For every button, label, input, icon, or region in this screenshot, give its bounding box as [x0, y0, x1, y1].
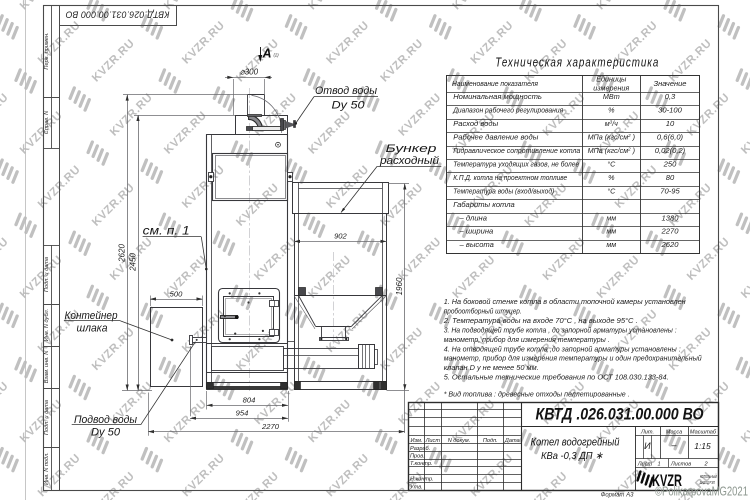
- svg-text:500: 500: [170, 290, 183, 299]
- svg-text:Перв. примен.: Перв. примен.: [44, 32, 50, 69]
- svg-text:250: 250: [663, 159, 677, 168]
- svg-text:Лит.: Лит.: [640, 429, 654, 435]
- svg-text:Н.контр.: Н.контр.: [410, 477, 434, 483]
- svg-text:пробоотборный штуцер.: пробоотборный штуцер.: [444, 306, 522, 315]
- svg-text:Масса: Масса: [666, 429, 683, 435]
- svg-text:Инв. N подл.: Инв. N подл.: [44, 452, 50, 485]
- svg-text:70-95: 70-95: [660, 186, 680, 195]
- svg-text:2. Температура воды на входе: 2. Температура воды на входе 70°С , на в…: [443, 316, 638, 325]
- svg-text:902: 902: [334, 231, 347, 240]
- svg-text:МПа (кгс/см2 ): МПа (кгс/см2 ): [588, 133, 635, 142]
- svg-text:804: 804: [243, 396, 256, 405]
- svg-text:Т.контр.: Т.контр.: [410, 461, 433, 467]
- svg-text:%: %: [608, 173, 615, 182]
- svg-text:2270: 2270: [261, 422, 280, 431]
- svg-text:–: –: [670, 440, 677, 450]
- svg-text:4. На отводящей трубе котла ,: 4. На отводящей трубе котла ,до запорной…: [444, 344, 681, 353]
- svg-text:КВа -0,3 ДП ∗: КВа -0,3 ДП ∗: [541, 450, 603, 462]
- svg-text:°С: °С: [607, 186, 616, 195]
- svg-text:Инв. N дубл.: Инв. N дубл.: [44, 309, 50, 341]
- svg-text:2270: 2270: [661, 227, 680, 236]
- svg-text:мм: мм: [606, 227, 616, 236]
- svg-text:1: 1: [657, 461, 660, 467]
- svg-text:К.П.Д. котла на проектном топл: К.П.Д. котла на проектном топливе: [453, 173, 567, 182]
- svg-text:3. На подводящей трубе котла: 3. На подводящей трубе котла , до запорн…: [444, 325, 677, 334]
- svg-text:клапан D у не менее 50 мм.: клапан D у не менее 50 мм.: [444, 363, 539, 372]
- svg-text:– высота: – высота: [453, 240, 494, 249]
- svg-text:манометр, прибор для измерени: манометр, прибор для измерения температу…: [444, 354, 703, 363]
- svg-text:%: %: [608, 106, 615, 115]
- svg-text:2620: 2620: [118, 244, 127, 263]
- svg-text:0,6(6,0): 0,6(6,0): [657, 133, 684, 142]
- svg-text:Dy 50: Dy 50: [91, 426, 121, 438]
- svg-text:10: 10: [666, 119, 675, 128]
- svg-text:Dy 50: Dy 50: [332, 99, 366, 111]
- svg-text:Номинальная мощность: Номинальная мощность: [453, 92, 542, 101]
- svg-text:расходный: расходный: [379, 155, 439, 167]
- svg-text:30-100: 30-100: [658, 106, 682, 115]
- svg-text:Лист: Лист: [637, 461, 653, 467]
- svg-text:Утв.: Утв.: [409, 484, 423, 490]
- svg-text:Техническая характеристика: Техническая характеристика: [495, 56, 659, 70]
- svg-text:Дата: Дата: [504, 438, 520, 444]
- svg-text:°С: °С: [607, 159, 616, 168]
- svg-text:©PolikarpovaMG2021: ©PolikarpovaMG2021: [655, 484, 748, 499]
- svg-text:МВт: МВт: [603, 92, 620, 101]
- svg-text:МПа (кгс/см2 ): МПа (кгс/см2 ): [588, 146, 635, 155]
- svg-text:– ширина: – ширина: [453, 227, 493, 236]
- svg-text:манометр, прибор для измерени: манометр, прибор для измерения температу…: [444, 335, 610, 344]
- svg-text:(2): (2): [274, 53, 280, 58]
- svg-text:шлака: шлака: [77, 322, 108, 334]
- svg-text:0,3: 0,3: [665, 92, 676, 101]
- svg-text:Гидравлическое сопротивление к: Гидравлическое сопротивление котла: [453, 146, 580, 155]
- svg-text:Рабочее давление воды: Рабочее давление воды: [453, 133, 539, 142]
- svg-text:1960: 1960: [395, 277, 404, 295]
- svg-text:Справ. N: Справ. N: [44, 110, 50, 134]
- svg-text:КВТД.026.031.00.000 ВО: КВТД.026.031.00.000 ВО: [66, 10, 170, 20]
- svg-text:Разраб.: Разраб.: [410, 446, 430, 452]
- svg-text:5. Остальные технические треб: 5. Остальные технические требования по О…: [444, 373, 669, 382]
- svg-text:1. На боковой стенке котла в: 1. На боковой стенке котла в области топ…: [444, 297, 687, 306]
- svg-text:Наименование показателя: Наименование показателя: [452, 79, 538, 88]
- svg-text:Диапазон рабочего регулировани: Диапазон рабочего регулирования: [452, 106, 563, 115]
- svg-text:Листов: Листов: [670, 461, 691, 467]
- svg-text:И: И: [644, 441, 651, 451]
- svg-text:Габариты котла: Габариты котла: [453, 200, 515, 209]
- svg-text:– длина: – длина: [453, 213, 487, 222]
- svg-text:см. п. 1: см. п. 1: [143, 225, 190, 237]
- svg-text:м3/ч: м3/ч: [605, 119, 618, 128]
- svg-text:Температура воды (вход/выход): Температура воды (вход/выход): [453, 186, 554, 195]
- svg-text:Температура уходящих газов, не: Температура уходящих газов, не более: [453, 159, 579, 168]
- svg-text:Формат А3: Формат А3: [601, 493, 634, 499]
- svg-text:мм: мм: [606, 240, 616, 249]
- svg-text:954: 954: [236, 409, 249, 418]
- svg-text:Подп. и дата: Подп. и дата: [44, 400, 50, 435]
- svg-text:Изм.: Изм.: [411, 438, 423, 444]
- svg-text:0,02(0,2): 0,02(0,2): [655, 146, 686, 155]
- svg-text:1380: 1380: [662, 213, 680, 222]
- svg-text:Подп. и дата: Подп. и дата: [44, 257, 50, 292]
- svg-text:Котел водогрейный: Котел водогрейный: [531, 437, 620, 449]
- svg-text:Масштаб: Масштаб: [690, 429, 717, 435]
- svg-text:КВТД .026.031.00.000 ВО: КВТД .026.031.00.000 ВО: [536, 405, 704, 424]
- svg-text:1:15: 1:15: [694, 441, 711, 451]
- svg-text:А: А: [262, 47, 272, 61]
- svg-text:2450: 2450: [129, 253, 138, 272]
- svg-text:Подп.: Подп.: [483, 438, 498, 444]
- svg-text:Подвод воды: Подвод воды: [74, 414, 137, 426]
- svg-text:N докум.: N докум.: [448, 438, 471, 444]
- svg-text:Значение: Значение: [654, 79, 687, 88]
- svg-text:⌀300: ⌀300: [240, 68, 259, 77]
- svg-text:Лист: Лист: [425, 438, 441, 444]
- svg-text:Пров.: Пров.: [410, 454, 425, 460]
- svg-text:мм: мм: [606, 213, 616, 222]
- svg-text:Бункер: Бункер: [386, 143, 437, 155]
- svg-text:80: 80: [666, 173, 675, 182]
- svg-text:* Вид топлива : древесные от: * Вид топлива : древесные отходы пеллети…: [444, 390, 630, 399]
- svg-text:Расход воды: Расход воды: [453, 119, 498, 128]
- svg-text:2620: 2620: [661, 240, 680, 249]
- svg-text:Единицы: Единицы: [596, 75, 627, 84]
- svg-text:Взам. инв. N: Взам. инв. N: [44, 350, 50, 384]
- svg-text:измерения: измерения: [593, 84, 629, 93]
- svg-text:Отвод воды: Отвод воды: [315, 85, 377, 97]
